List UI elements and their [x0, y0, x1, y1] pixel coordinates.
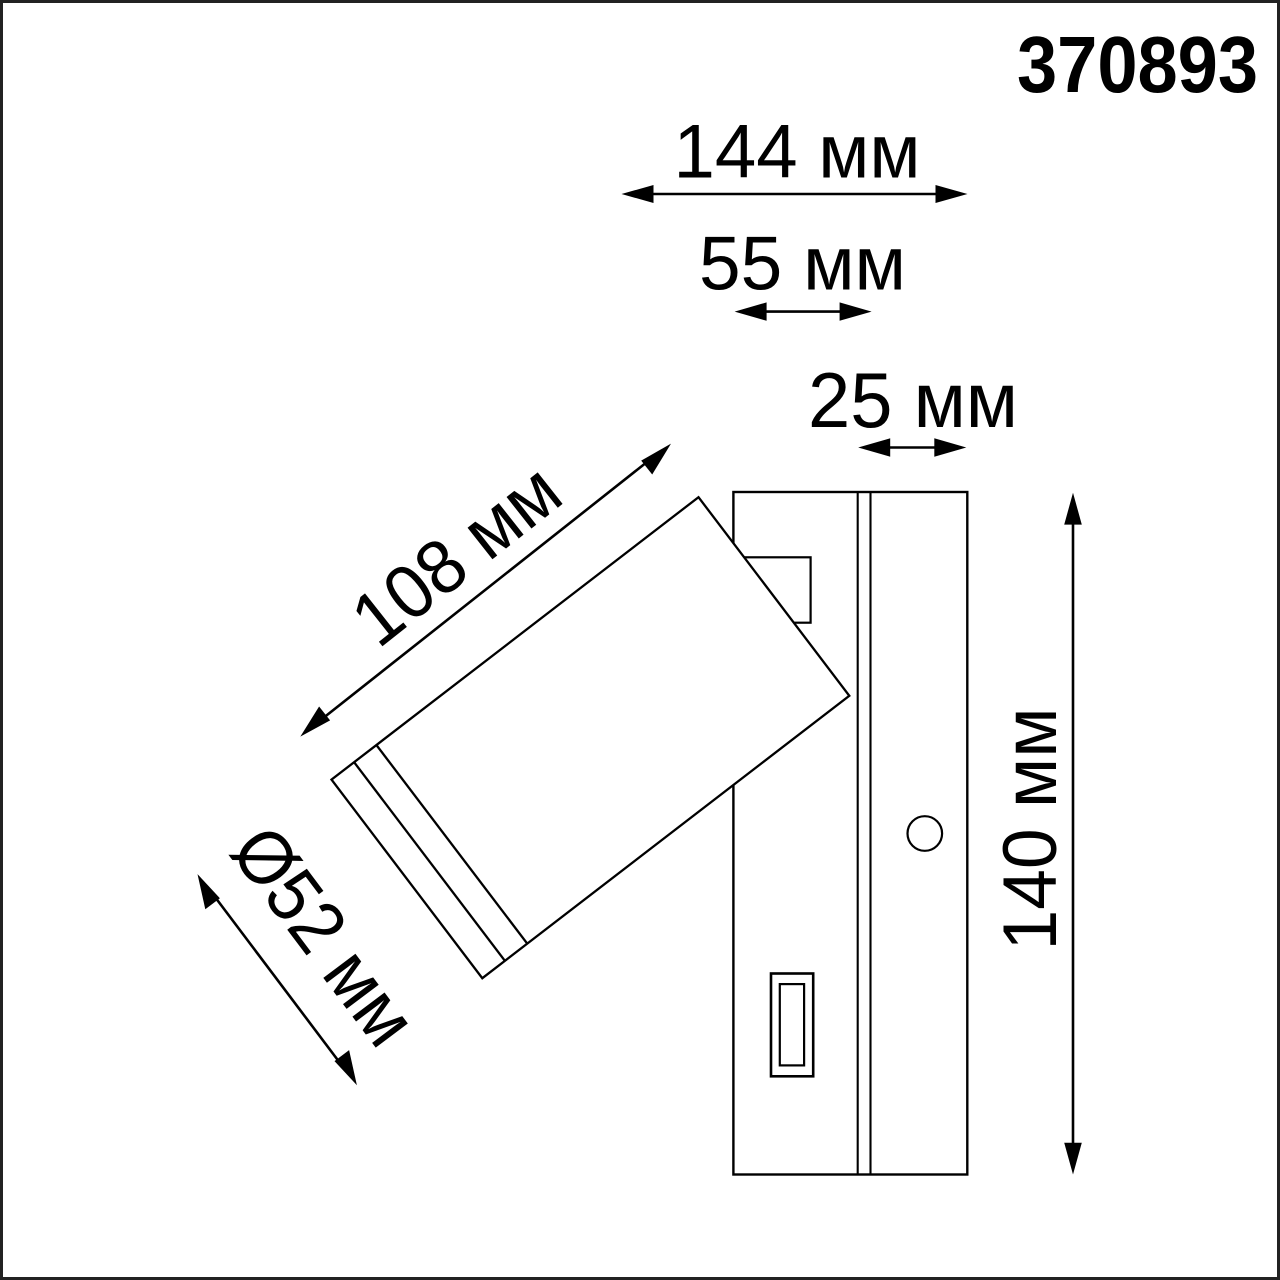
- svg-text:25 мм: 25 мм: [808, 356, 1018, 444]
- svg-text:55 мм: 55 мм: [699, 221, 906, 306]
- svg-text:140 мм: 140 мм: [988, 708, 1073, 951]
- svg-text:144 мм: 144 мм: [674, 110, 921, 195]
- svg-text:370893: 370893: [1017, 20, 1258, 109]
